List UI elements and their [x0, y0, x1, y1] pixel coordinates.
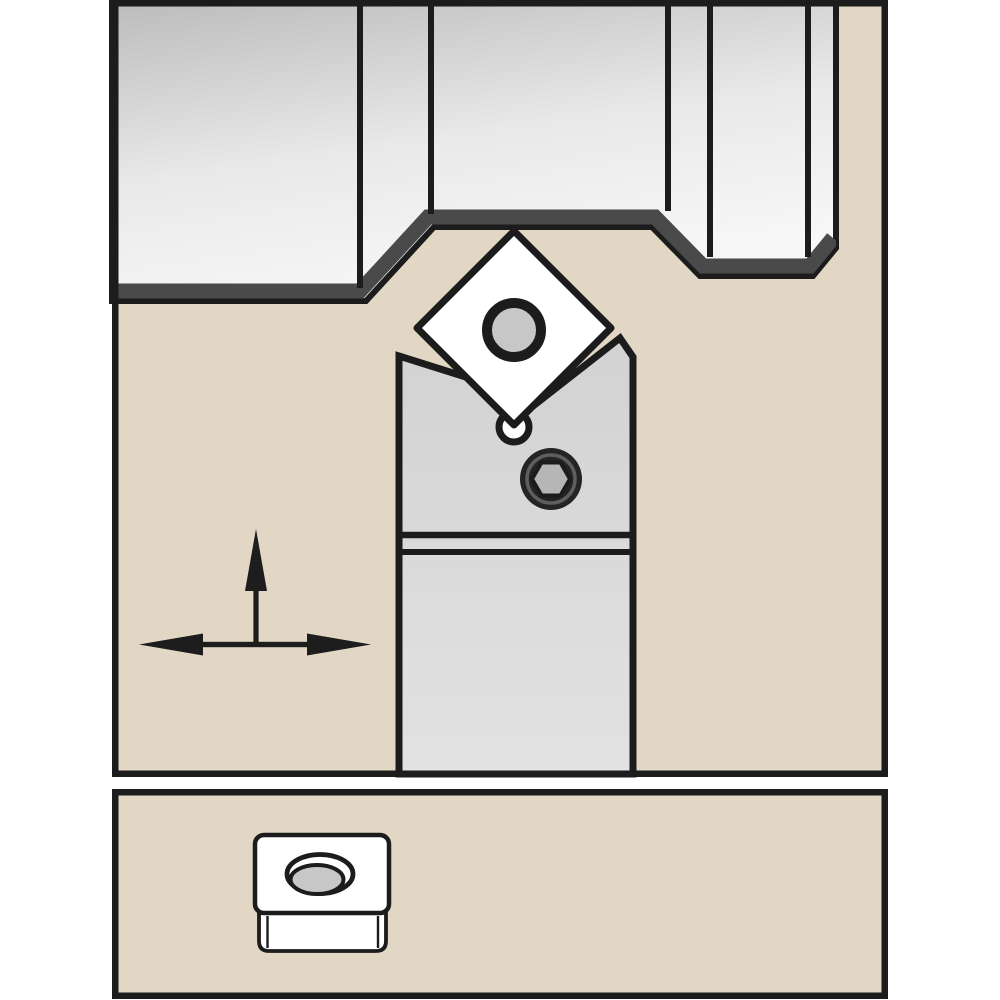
arrow-horizontal-line: [201, 642, 309, 647]
square-insert: [255, 835, 389, 951]
tool-holder-illustration: [0, 0, 1000, 1000]
oval-hole-inner: [291, 865, 344, 894]
hex-socket-icon: [532, 463, 570, 496]
arrow-up-stem: [253, 589, 258, 646]
main-panel: [106, 3, 885, 774]
countersunk-oval-hole: [287, 855, 353, 895]
clamp-screw-hex: [520, 448, 582, 510]
bottom-panel: [115, 792, 885, 996]
square-insert-side-face: [259, 913, 386, 951]
illustration-page: [0, 0, 1000, 1000]
insert-center-hole: [487, 303, 541, 357]
bottom-panel-background: [115, 792, 885, 996]
